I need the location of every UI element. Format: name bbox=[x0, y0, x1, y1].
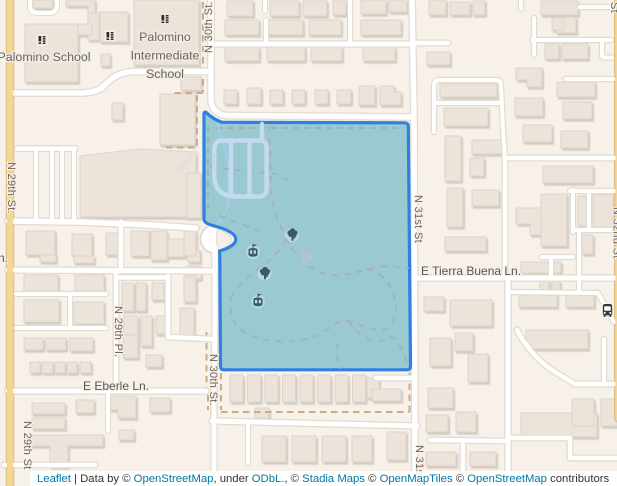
svg-text:N 31st St: N 31st St bbox=[412, 195, 424, 243]
svg-text:n.: n. bbox=[0, 251, 8, 265]
svg-text:E Tierra Buena Ln.: E Tierra Buena Ln. bbox=[421, 264, 521, 278]
svg-text:School: School bbox=[146, 67, 184, 81]
svg-text:N 32nd St: N 32nd St bbox=[611, 207, 617, 259]
svg-text:N 30th St.: N 30th St. bbox=[207, 354, 219, 406]
svg-text:Intermediate: Intermediate bbox=[131, 49, 200, 63]
svg-text:St: St bbox=[608, 2, 617, 13]
svg-text:Palomino: Palomino bbox=[139, 30, 191, 44]
svg-text:N 29th Pl.: N 29th Pl. bbox=[112, 306, 124, 357]
svg-text:E Eberle Ln.: E Eberle Ln. bbox=[83, 379, 149, 393]
svg-text:N 29th St: N 29th St bbox=[21, 421, 33, 470]
svg-text:N 29th St.: N 29th St. bbox=[5, 162, 17, 214]
svg-text:N 30th St.: N 30th St. bbox=[203, 1, 215, 53]
svg-text:Leaflet | Data by © OpenStreet: Leaflet | Data by © OpenStreetMap, under… bbox=[37, 473, 609, 485]
svg-text:Palomino School: Palomino School bbox=[0, 50, 90, 64]
